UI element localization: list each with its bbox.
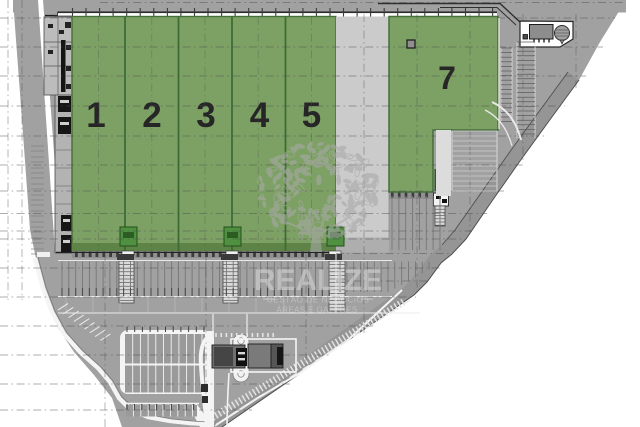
svg-text:REALIZE: REALIZE <box>254 264 382 297</box>
svg-text:GESTÃO DE NEGÓCIOS: GESTÃO DE NEGÓCIOS <box>267 296 370 305</box>
svg-text:ÁREAS E GALPÕES: ÁREAS E GALPÕES <box>276 306 357 315</box>
svg-text:3: 3 <box>196 96 215 135</box>
svg-text:1: 1 <box>86 96 105 135</box>
svg-text:7: 7 <box>438 60 456 96</box>
svg-text:4: 4 <box>250 96 270 135</box>
